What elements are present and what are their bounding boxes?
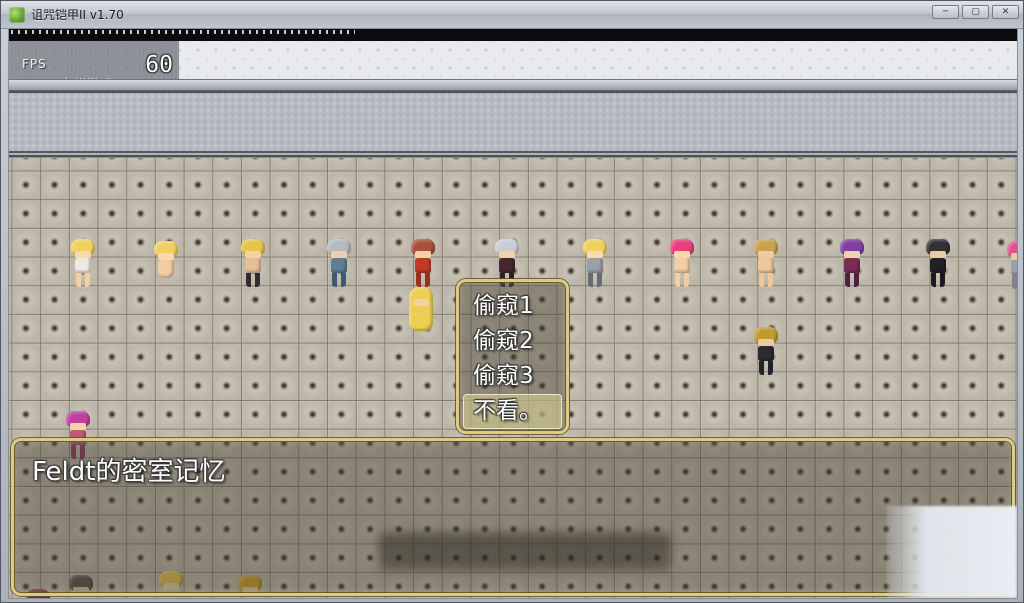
character-sprite-edge-pink-hair — [1004, 241, 1017, 293]
character-sprite-blonde-nude-sitting — [151, 241, 181, 293]
game-viewport: FPS 60 名堂游戏 Feldt的密室记忆 偷窥1偷窥2偷窥3不看。 — [9, 29, 1017, 598]
choice-list: 偷窥1偷窥2偷窥3不看。 — [463, 289, 562, 429]
choice-menu: 偷窥1偷窥2偷窥3不看。 — [456, 279, 569, 434]
app-window: 诅咒铠甲II v1.70 ─ ▢ ✕ FPS 60 名堂游戏 Feldt的密室记… — [0, 0, 1024, 603]
character-sprite-blonde-black-pants — [238, 239, 268, 291]
character-sprite-purple-armor-warrior — [837, 239, 867, 291]
character-sprite-pink-hair-nude — [667, 239, 697, 291]
message-text: Feldt的密室记忆 — [32, 457, 225, 487]
character-sprite-grey-armored-knight — [324, 239, 354, 291]
choice-option[interactable]: 偷窥3 — [463, 359, 562, 394]
message-box: Feldt的密室记忆 — [11, 438, 1015, 596]
choice-option[interactable]: 偷窥1 — [463, 289, 562, 324]
character-sprite-red-dress-woman — [408, 239, 438, 291]
character-sprite-blonde-white-dress — [68, 239, 98, 291]
character-sprite-black-coat-man — [923, 239, 953, 291]
character-sprite-blonde-maid — [580, 239, 610, 291]
minimize-button[interactable]: ─ — [932, 5, 959, 19]
titlebar[interactable]: 诅咒铠甲II v1.70 ─ ▢ ✕ — [1, 1, 1024, 29]
choice-option-selected[interactable]: 不看。 — [463, 394, 562, 429]
window-controls: ─ ▢ ✕ — [932, 5, 1019, 19]
window-title: 诅咒铠甲II v1.70 — [31, 6, 124, 23]
character-sprite-blonde-black-suit — [751, 327, 781, 379]
character-sprite-tan-short-hair-nude — [751, 239, 781, 291]
app-icon — [9, 7, 25, 23]
fog-overlay — [887, 506, 1017, 598]
character-sprite-yellow-longhair-kneel — [406, 287, 436, 339]
maximize-button[interactable]: ▢ — [962, 5, 989, 19]
close-button[interactable]: ✕ — [992, 5, 1019, 19]
shadow-smudge — [379, 532, 671, 570]
choice-option[interactable]: 偷窥2 — [463, 324, 562, 359]
